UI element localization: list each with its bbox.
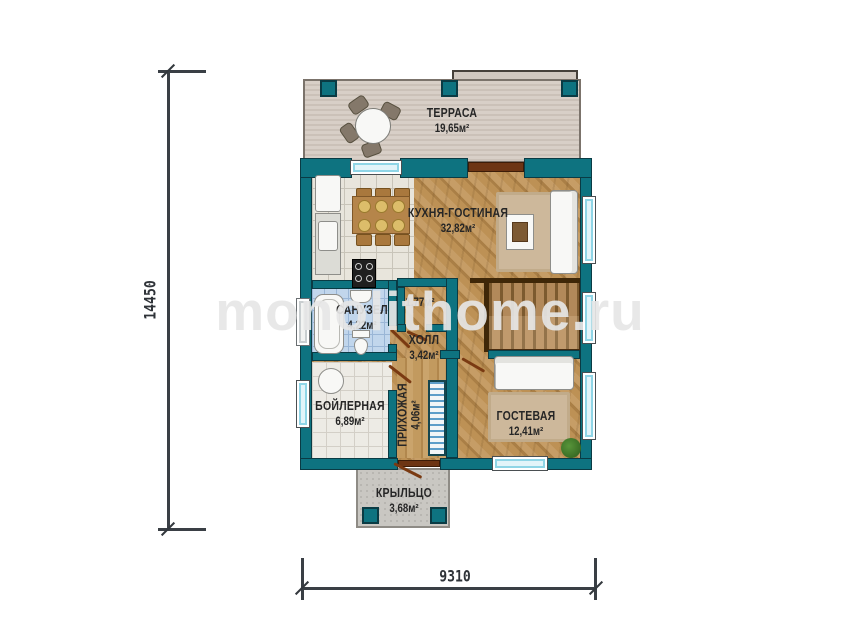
room-name: БОЙЛЕРНАЯ	[315, 399, 385, 415]
room-area: 3,42м²	[409, 349, 439, 363]
label-wardrobe: 1,77м²	[405, 296, 434, 310]
room-area: 32,82м²	[408, 222, 508, 236]
sofa-living	[550, 190, 578, 274]
stove-burner	[366, 275, 373, 282]
kitchen-sink	[318, 221, 338, 251]
wall-bottom-a	[300, 458, 398, 470]
terrace-pillar-right	[561, 80, 578, 97]
label-bathroom: САНУЗЕЛ 4,22м²	[336, 303, 388, 333]
label-porch: КРЫЛЬЦО 3,68м²	[376, 486, 432, 516]
label-kitchen-living: КУХНЯ-ГОСТИНАЯ 32,82м²	[408, 206, 508, 236]
room-name: ТЕРРАСА	[427, 106, 477, 122]
terrace-pillar-middle	[441, 80, 458, 97]
place-setting	[392, 219, 405, 232]
window-stairs-right	[582, 292, 596, 344]
terrace-door-sill	[468, 162, 524, 172]
stove-burner	[355, 263, 362, 270]
room-area: 3,68м²	[376, 502, 432, 516]
wall-bathroom-right-upper	[388, 280, 397, 326]
dim-value-width: 9310	[439, 567, 471, 586]
label-boiler-room: БОЙЛЕРНАЯ 6,89м²	[315, 399, 385, 429]
room-area: 4,06м²	[411, 383, 425, 446]
terrace-pillar-left	[320, 80, 337, 97]
wall-kitchen-bathroom	[312, 280, 390, 289]
dim-line-vertical	[167, 70, 170, 531]
stair-rail-left	[484, 278, 489, 352]
room-area: 4,22м²	[336, 319, 388, 333]
sofa-guest	[494, 356, 574, 390]
fridge	[315, 175, 341, 212]
wall-entry-guest	[446, 358, 458, 458]
room-name: ПРИХОЖАЯ	[396, 383, 411, 446]
window-boiler-left	[296, 380, 310, 428]
place-setting	[358, 219, 371, 232]
wall-bottom-b	[440, 458, 494, 470]
dim-line-horizontal	[301, 587, 597, 590]
place-setting	[375, 200, 388, 213]
dining-chair	[375, 234, 391, 246]
dining-chair	[356, 234, 372, 246]
dim-ext-right	[594, 558, 597, 600]
wall-hall-stairs	[446, 278, 458, 358]
room-name: КРЫЛЬЦО	[376, 486, 432, 502]
stove-burner	[366, 263, 373, 270]
wall-top-b	[400, 158, 468, 178]
stove-burner	[355, 275, 362, 282]
room-name: САНУЗЕЛ	[336, 303, 388, 319]
dim-value-height: 14450	[141, 280, 160, 320]
boiler-tank	[318, 368, 344, 394]
room-area: 1,77м²	[405, 296, 434, 310]
window-guest-right	[582, 372, 596, 440]
wall-top-c	[524, 158, 592, 178]
wall-bottom-c	[546, 458, 592, 470]
dim-ext-left	[301, 558, 304, 600]
window-living-right	[582, 196, 596, 264]
window-kitchen-top	[350, 160, 402, 175]
plant	[561, 438, 581, 458]
room-area: 12,41м²	[497, 425, 556, 439]
place-setting	[392, 200, 405, 213]
window-bathroom-left	[296, 298, 310, 346]
label-terrace: ТЕРРАСА 19,65м²	[427, 106, 477, 136]
room-name: КУХНЯ-ГОСТИНАЯ	[408, 206, 508, 222]
staircase	[488, 282, 580, 350]
coffee-table-top	[512, 222, 528, 242]
radiator	[428, 380, 446, 456]
place-setting	[358, 200, 371, 213]
floor-plan-canvas: ТЕРРАСА 19,65м² КУХНЯ-ГОСТИНАЯ 32,82м² С…	[0, 0, 855, 620]
porch-pillar-right	[430, 507, 447, 524]
room-area: 6,89м²	[315, 415, 385, 429]
window-guest-bottom	[492, 456, 548, 471]
place-setting	[375, 219, 388, 232]
wall-wardrobe-bottom-a	[397, 324, 406, 332]
bathroom-sink	[350, 290, 372, 303]
wall-wardrobe-top	[397, 278, 449, 287]
label-entry-hall: ПРИХОЖАЯ 4,06м²	[396, 383, 425, 446]
porch-door-sill	[398, 460, 440, 467]
label-hall: ХОЛЛ 3,42м²	[409, 333, 439, 363]
label-guest-room: ГОСТЕВАЯ 12,41м²	[497, 409, 556, 439]
room-name: ХОЛЛ	[409, 333, 439, 349]
terrace-table	[355, 108, 391, 144]
room-name: ГОСТЕВАЯ	[497, 409, 556, 425]
room-area: 19,65м²	[427, 122, 477, 136]
